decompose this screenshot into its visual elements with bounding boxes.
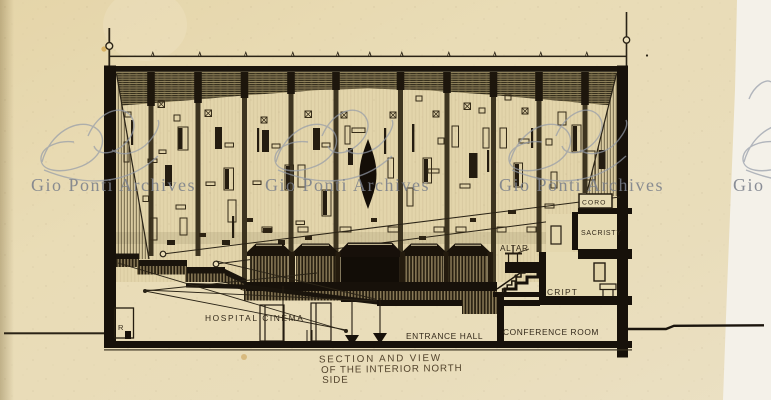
svg-text:Gio Ponti Archives: Gio Ponti Archives bbox=[499, 175, 664, 195]
svg-text:CORO: CORO bbox=[582, 200, 606, 207]
svg-text:SACRISTY: SACRISTY bbox=[581, 230, 622, 237]
svg-text:HOSPITAL CINEMA: HOSPITAL CINEMA bbox=[205, 313, 304, 323]
svg-text:Gio Po: Gio Po bbox=[733, 175, 771, 195]
svg-text:ENTRANCE HALL: ENTRANCE HALL bbox=[406, 331, 483, 341]
svg-text:SIDE: SIDE bbox=[322, 375, 349, 386]
svg-text:CONFERENCE ROOM: CONFERENCE ROOM bbox=[503, 327, 599, 337]
svg-text:R: R bbox=[118, 323, 124, 332]
svg-text:Gio Ponti Archives: Gio Ponti Archives bbox=[265, 175, 430, 195]
svg-text:Gio Ponti Archives: Gio Ponti Archives bbox=[31, 175, 196, 195]
svg-text:CRIPT: CRIPT bbox=[547, 287, 578, 297]
svg-text:ALTAR: ALTAR bbox=[500, 244, 529, 253]
